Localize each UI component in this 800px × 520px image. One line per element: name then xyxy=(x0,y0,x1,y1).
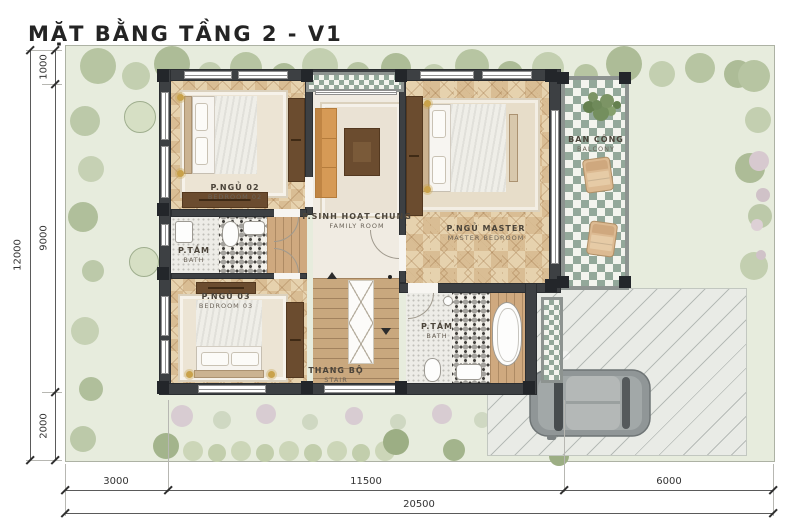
dresser xyxy=(182,192,268,208)
sliding-door xyxy=(551,110,559,264)
window xyxy=(161,146,169,198)
balcony-corner-post xyxy=(619,276,631,288)
pillow xyxy=(432,156,446,184)
lamp-icon xyxy=(424,100,431,107)
blanket xyxy=(450,104,506,192)
sink xyxy=(243,221,265,235)
tree-band-right xyxy=(738,60,770,92)
stair-arrow-down-icon xyxy=(381,328,391,335)
tree-band-left xyxy=(70,106,100,136)
palm-trees xyxy=(153,433,179,459)
pillow xyxy=(201,352,229,366)
lamp-icon xyxy=(424,186,431,193)
chair-back xyxy=(592,224,615,236)
bed-headboard xyxy=(184,96,192,174)
blanket xyxy=(214,96,257,174)
window xyxy=(324,385,396,393)
column xyxy=(545,69,557,82)
toilet xyxy=(222,221,239,247)
lamp-icon xyxy=(268,371,275,378)
doorway xyxy=(305,177,313,207)
dim-guide xyxy=(168,400,169,492)
stair-start-dot xyxy=(388,275,392,279)
dim-guide xyxy=(26,460,62,461)
sofa xyxy=(315,108,337,198)
dim-line-left-segments xyxy=(55,50,56,460)
window xyxy=(198,385,266,393)
pillow xyxy=(231,352,259,366)
dim-value: 6000 xyxy=(656,476,681,487)
dim-line-bottom-segments xyxy=(65,490,773,491)
shower xyxy=(175,221,193,243)
column xyxy=(301,381,313,394)
column xyxy=(545,279,557,292)
chair-back xyxy=(585,160,608,172)
bed-bench xyxy=(509,114,518,182)
lamp-icon xyxy=(177,170,184,177)
balcony-corner-post xyxy=(557,72,569,84)
column xyxy=(301,69,313,82)
sofa-cushion-line xyxy=(322,167,336,168)
column xyxy=(157,381,169,394)
sofa-cushion-line xyxy=(322,138,336,139)
column xyxy=(157,267,169,280)
bathtub xyxy=(492,302,522,366)
window xyxy=(420,71,474,79)
dim-value: 9000 xyxy=(39,225,50,250)
window xyxy=(184,71,232,79)
column xyxy=(395,381,407,394)
pillow xyxy=(195,103,208,131)
chair-seat xyxy=(590,234,614,251)
doorway xyxy=(399,235,406,271)
dim-value: 3000 xyxy=(103,476,128,487)
bed-headboard xyxy=(194,370,264,378)
column xyxy=(395,69,407,82)
dim-value: 11500 xyxy=(350,476,382,487)
lamp-icon xyxy=(186,371,193,378)
wall-bath2-right xyxy=(525,283,537,395)
page-title: MẶT BẰNG TẦNG 2 - V1 xyxy=(28,22,343,46)
wardrobe xyxy=(288,98,305,182)
shower-head-icon xyxy=(443,296,453,306)
dim-value: 1000 xyxy=(39,54,50,79)
column xyxy=(523,381,535,394)
sofa-back xyxy=(316,109,322,197)
wardrobe xyxy=(406,96,423,216)
doorway xyxy=(274,209,300,217)
tree-row-top xyxy=(80,48,116,84)
window xyxy=(315,90,397,95)
dim-total: 20500 xyxy=(403,499,435,510)
side-ledge xyxy=(541,297,563,383)
dresser xyxy=(196,282,256,294)
wardrobe xyxy=(286,302,304,378)
floor-plan-page: MẶT BẰNG TẦNG 2 - V1 xyxy=(0,0,800,520)
lamp-icon xyxy=(177,94,184,101)
blanket xyxy=(196,300,262,347)
window xyxy=(161,92,169,140)
balcony-corner-post xyxy=(619,72,631,84)
bush-row-bottom xyxy=(183,441,203,461)
sink xyxy=(456,364,482,380)
window xyxy=(161,296,169,336)
round-tree-1 xyxy=(124,101,156,133)
juliet-balcony xyxy=(306,72,404,92)
lounge-chair xyxy=(582,156,614,194)
window xyxy=(482,71,532,79)
pillow xyxy=(195,137,208,165)
pillow xyxy=(432,110,446,138)
toilet xyxy=(424,358,441,382)
bathtub-inner xyxy=(497,308,519,362)
stair-arrow-up-icon xyxy=(327,272,337,279)
doorway xyxy=(274,273,300,279)
chair-seat xyxy=(587,170,611,187)
dim-guide xyxy=(564,400,565,492)
stair-runner xyxy=(348,280,374,364)
shrub-band-pink xyxy=(171,405,193,427)
round-tree-2 xyxy=(129,247,159,277)
dim-line-left-total xyxy=(30,50,31,460)
window xyxy=(161,224,169,246)
dim-guide xyxy=(26,50,62,51)
window xyxy=(238,71,288,79)
dim-total: 12000 xyxy=(13,239,24,271)
lounge-chair xyxy=(586,220,618,258)
dim-value: 2000 xyxy=(39,413,50,438)
table-tray xyxy=(353,142,371,162)
column xyxy=(157,69,169,82)
dim-line-bottom-total xyxy=(65,513,773,514)
flower-cluster-right xyxy=(749,151,769,171)
balcony-corner-post xyxy=(557,276,569,288)
column xyxy=(157,203,169,216)
window xyxy=(161,340,169,374)
coffee-table xyxy=(344,128,380,176)
plant-icon xyxy=(592,100,602,110)
doorway xyxy=(408,283,438,293)
